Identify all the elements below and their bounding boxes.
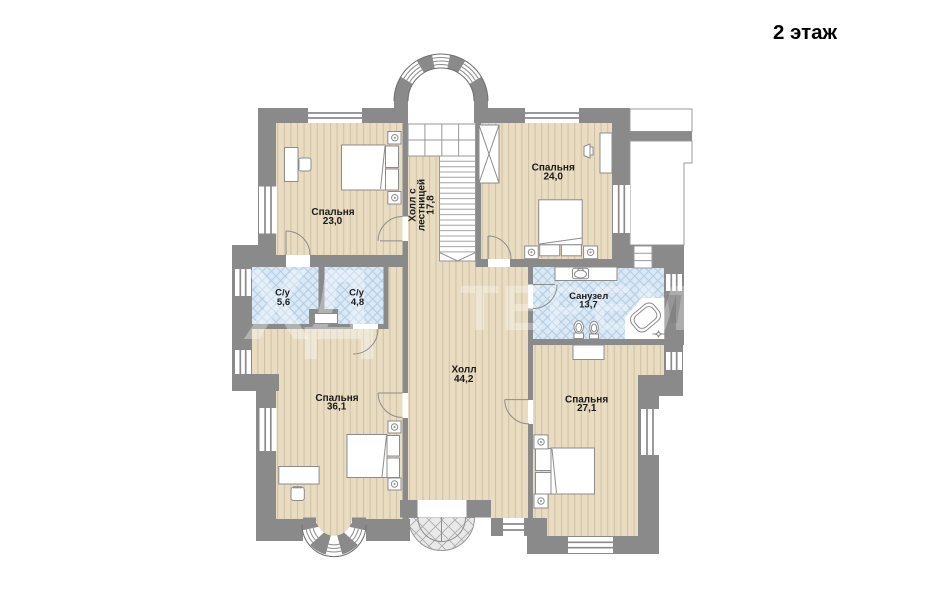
svg-text:44,2: 44,2 — [454, 374, 474, 385]
svg-text:17,8: 17,8 — [425, 195, 436, 215]
svg-text:24,0: 24,0 — [543, 171, 563, 182]
svg-text:23,0: 23,0 — [323, 216, 343, 227]
svg-text:13,7: 13,7 — [579, 299, 598, 310]
svg-text:5,6: 5,6 — [277, 297, 290, 308]
svg-text:4,8: 4,8 — [351, 297, 364, 308]
svg-text:2 этаж: 2 этаж — [773, 21, 838, 44]
svg-text:27,1: 27,1 — [577, 403, 597, 414]
svg-text:36,1: 36,1 — [327, 402, 347, 413]
